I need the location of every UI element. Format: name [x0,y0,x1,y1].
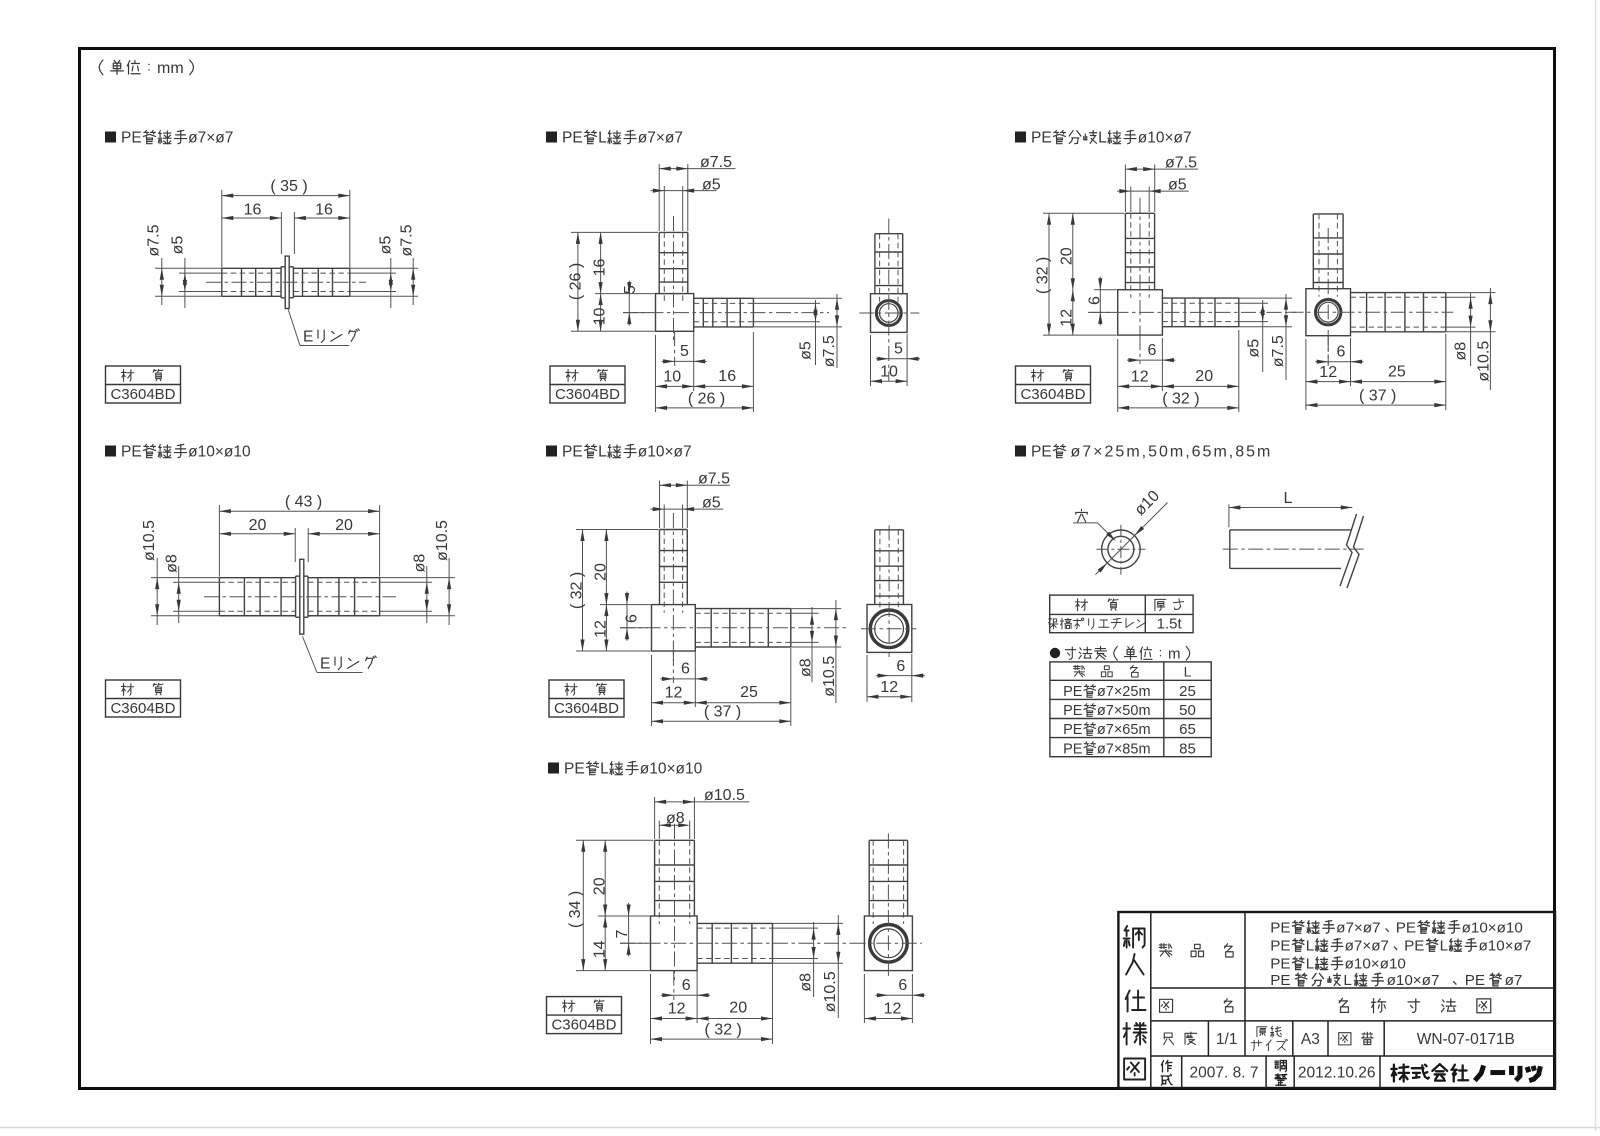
svg-text:10: 10 [591,308,608,326]
svg-text:14: 14 [592,940,609,958]
svg-text:ø7.5: ø7.5 [821,335,838,367]
svg-text:PE: PE [1270,972,1290,989]
svg-text:PE: PE [1465,972,1485,989]
svg-text:12: 12 [593,620,610,638]
svg-text:ø8: ø8 [1453,342,1470,361]
svg-text:6: 6 [681,661,690,678]
svg-text:PE: PE [1063,722,1083,738]
svg-text:ø5: ø5 [377,236,394,255]
svg-text:ø10×ø7: ø10×ø7 [638,444,692,461]
svg-text:85: 85 [1179,740,1196,757]
svg-text:ø5: ø5 [702,494,721,511]
svg-text:20: 20 [335,517,353,534]
svg-text:1.5t: 1.5t [1157,616,1183,633]
svg-text:ø5: ø5 [169,236,186,255]
svg-text:( 26 ): ( 26 ) [688,390,725,407]
svg-text:12: 12 [880,679,898,696]
svg-text:12: 12 [1131,369,1149,386]
svg-text:16: 16 [315,202,333,219]
svg-text:65: 65 [1179,721,1196,738]
svg-text:ø7×25m,50m,65m,85m: ø7×25m,50m,65m,85m [1071,444,1273,461]
svg-text:PE: PE [1063,741,1083,757]
svg-text:ø8: ø8 [666,810,685,827]
svg-text:16: 16 [718,368,736,385]
svg-text:12: 12 [665,685,683,702]
svg-text:C3604BD: C3604BD [555,386,620,403]
svg-text:20: 20 [1059,247,1076,265]
svg-text:25: 25 [740,684,758,701]
svg-text:L: L [1306,956,1314,973]
svg-text:25: 25 [1179,683,1196,700]
svg-text:PE: PE [1404,937,1424,954]
svg-text:ø8: ø8 [797,973,814,992]
svg-text:2012.10.26: 2012.10.26 [1298,1065,1376,1082]
svg-text:10: 10 [663,369,681,386]
svg-text:ø7.5: ø7.5 [1165,154,1197,171]
svg-text:( 26 ): ( 26 ) [567,263,584,300]
svg-text:20: 20 [249,517,267,534]
svg-text:PE: PE [1031,444,1052,461]
svg-text:7: 7 [614,929,631,938]
svg-text:16: 16 [591,259,608,277]
svg-text:ø7×ø7: ø7×ø7 [1345,937,1389,954]
svg-text:ø10×ø10: ø10×ø10 [1462,919,1523,936]
svg-text:ø10×ø7: ø10×ø7 [1138,130,1192,147]
svg-text:ø10.5: ø10.5 [704,787,745,804]
svg-text:PE: PE [1270,956,1290,973]
svg-text:ø8: ø8 [163,554,180,573]
svg-text:C3604BD: C3604BD [551,1017,616,1034]
svg-text:ø10.5: ø10.5 [822,971,839,1012]
svg-text:ø5: ø5 [1246,339,1263,358]
svg-text:ø5: ø5 [797,341,814,360]
svg-text:( 35 ): ( 35 ) [270,178,307,195]
svg-text:L: L [1098,130,1107,147]
svg-text:PE: PE [562,444,583,461]
svg-text:25: 25 [1388,364,1406,381]
svg-text:16: 16 [244,202,262,219]
svg-text:20: 20 [1195,368,1213,385]
svg-text:ø7.5: ø7.5 [398,224,415,256]
svg-text:L: L [598,444,607,461]
svg-text:6: 6 [682,977,691,994]
svg-text:PE: PE [1270,919,1290,936]
svg-text:ø7×65m: ø7×65m [1097,722,1151,738]
svg-text:PE: PE [1270,937,1290,954]
svg-text:ø7×ø7: ø7×ø7 [1336,919,1380,936]
svg-text:12: 12 [884,1001,902,1018]
svg-text:2007. 8. 7: 2007. 8. 7 [1190,1065,1259,1082]
svg-text:PE: PE [562,130,583,147]
svg-text:ø7.5: ø7.5 [700,154,732,171]
svg-text:L: L [598,130,607,147]
svg-text:ø10×ø10: ø10×ø10 [1345,956,1406,973]
svg-text:C3604BD: C3604BD [1020,386,1085,403]
svg-text:6: 6 [1147,342,1156,359]
svg-text:ø7×50m: ø7×50m [1097,703,1151,719]
svg-text:20: 20 [729,1000,747,1017]
svg-text:L: L [1184,663,1192,679]
svg-text:( 37 ): ( 37 ) [704,704,741,721]
svg-text:PE: PE [1031,130,1052,147]
svg-text:12: 12 [668,1001,686,1018]
svg-text:10: 10 [880,364,898,381]
svg-text:5: 5 [680,343,689,360]
svg-text:PE: PE [1063,684,1083,700]
svg-text:L: L [1306,937,1314,954]
svg-text:ø10.5: ø10.5 [434,520,451,561]
svg-text:L: L [1284,490,1293,507]
svg-text:( 32 ): ( 32 ) [705,1022,742,1039]
svg-text:ø10×ø10: ø10×ø10 [640,761,703,778]
svg-text:5: 5 [622,285,639,294]
svg-text:C3604BD: C3604BD [110,386,175,403]
svg-text:6: 6 [624,614,641,623]
svg-text:ø7.5: ø7.5 [1270,335,1287,367]
svg-text:6: 6 [1336,344,1345,361]
svg-text:ø7: ø7 [1505,972,1523,989]
svg-text:m: m [1168,645,1181,662]
svg-text:A3: A3 [1301,1031,1320,1048]
svg-text:ø5: ø5 [1168,176,1187,193]
svg-text:C3604BD: C3604BD [110,700,175,717]
svg-text:5: 5 [894,341,903,358]
svg-text:ø7×ø7: ø7×ø7 [638,130,683,147]
svg-text:ø10.5: ø10.5 [821,656,838,697]
svg-text:20: 20 [593,563,610,581]
svg-text:( 32 ): ( 32 ) [1034,257,1051,294]
svg-text:ø7×85m: ø7×85m [1097,741,1151,757]
svg-text:WN-07-0171B: WN-07-0171B [1417,1031,1515,1048]
svg-text:ø7×ø7: ø7×ø7 [188,130,233,147]
svg-text:ø10.5: ø10.5 [1476,341,1493,382]
svg-text:12: 12 [1059,309,1076,327]
svg-text:mm: mm [157,60,184,77]
svg-text:ø10×ø7: ø10×ø7 [1387,972,1440,989]
svg-text:( 37 ): ( 37 ) [1359,388,1396,405]
svg-text:PE: PE [564,761,585,778]
svg-text:ø7×25m: ø7×25m [1097,684,1151,700]
svg-text:12: 12 [1319,364,1337,381]
svg-text:6: 6 [896,658,905,675]
svg-text:L: L [1343,972,1351,989]
svg-text:PE: PE [121,444,142,461]
svg-text:ø8: ø8 [411,554,428,573]
svg-text:L: L [1440,937,1448,954]
svg-text:PE: PE [1063,703,1083,719]
svg-text:L: L [600,761,609,778]
svg-text:( 32 ): ( 32 ) [568,572,585,609]
svg-text:ø5: ø5 [702,176,721,193]
svg-text:( 43 ): ( 43 ) [285,494,322,511]
svg-text:C3604BD: C3604BD [554,700,619,717]
svg-text:ø10×ø7: ø10×ø7 [1479,937,1532,954]
svg-text:50: 50 [1179,702,1196,719]
svg-text:E: E [320,656,330,673]
svg-text:( 34 ): ( 34 ) [567,891,584,928]
svg-text:6: 6 [1086,296,1103,305]
svg-text:( 32 ): ( 32 ) [1162,390,1199,407]
svg-text:ø7.5: ø7.5 [698,470,730,487]
svg-text:ø10×ø10: ø10×ø10 [188,444,251,461]
svg-text:ø8: ø8 [798,658,815,677]
svg-text:E: E [303,329,313,346]
svg-text:ø7.5: ø7.5 [145,224,162,256]
svg-text:20: 20 [592,877,609,895]
svg-text:PE: PE [1396,919,1416,936]
svg-text:1/1: 1/1 [1216,1031,1238,1048]
svg-text:ø10.5: ø10.5 [141,520,158,561]
svg-text:PE: PE [121,130,142,147]
svg-text:6: 6 [898,977,907,994]
